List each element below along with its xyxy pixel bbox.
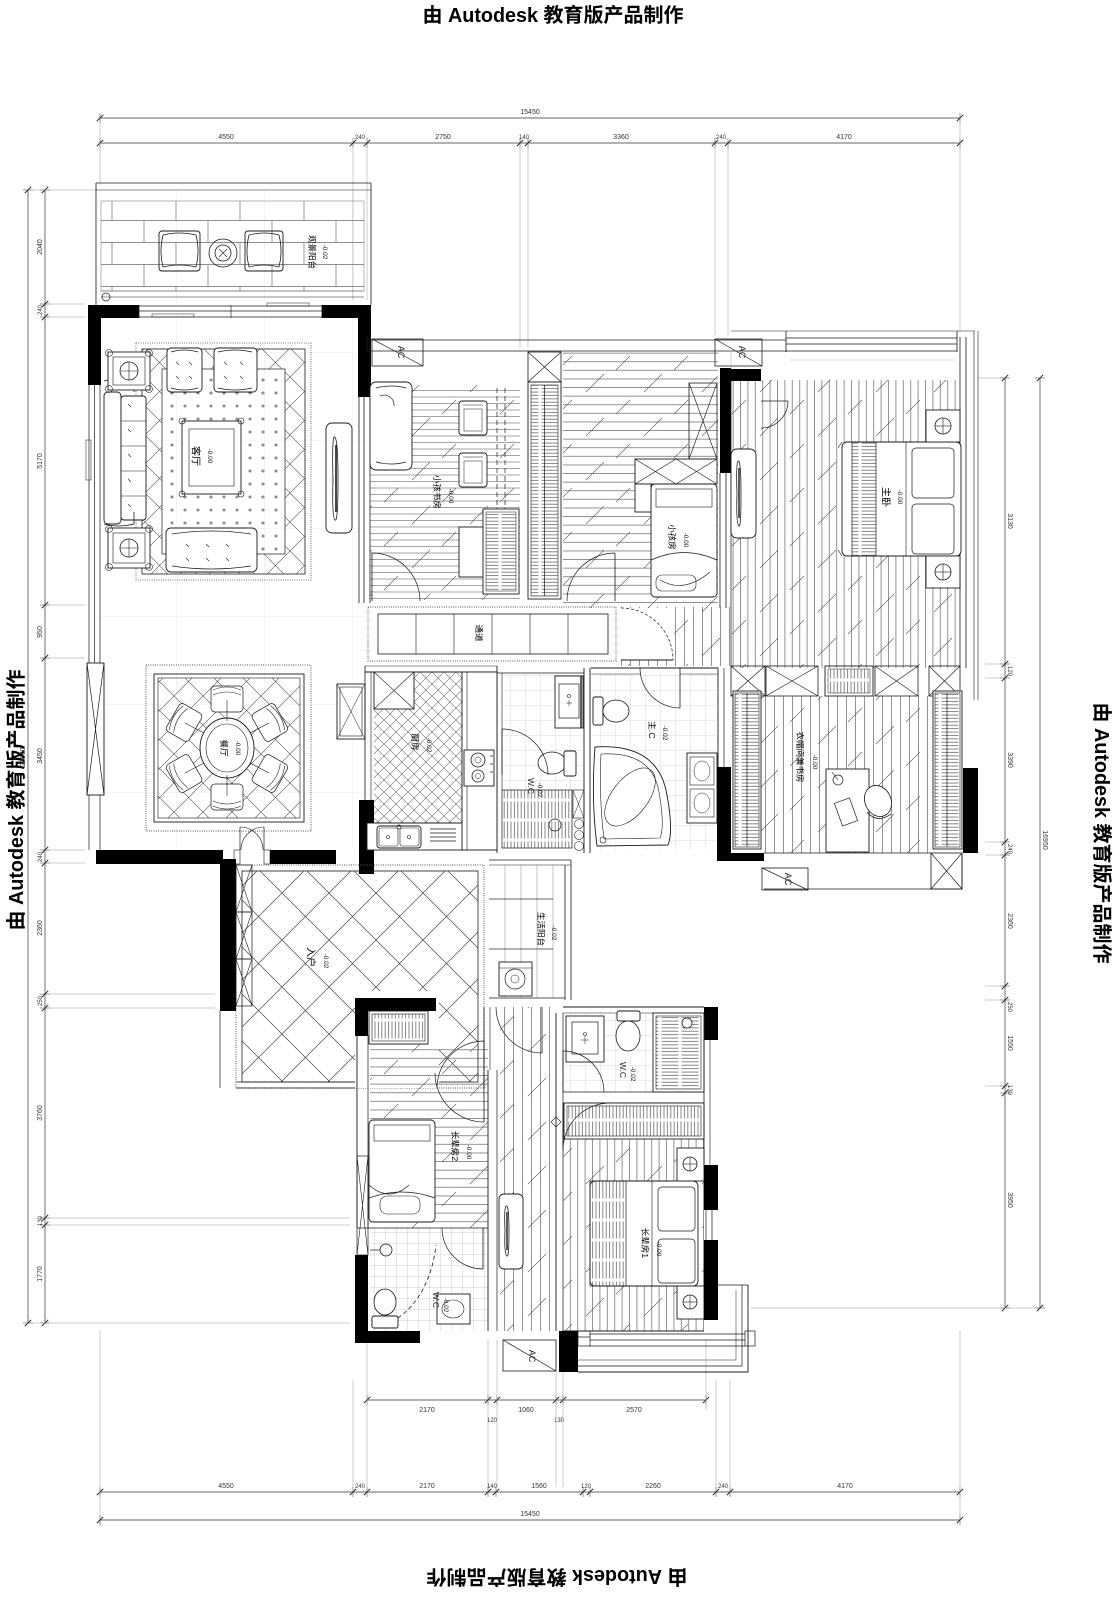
svg-text:3130: 3130 (1006, 513, 1013, 529)
svg-text:140: 140 (487, 1484, 498, 1490)
svg-text:15450: 15450 (520, 1511, 540, 1518)
svg-text:W.C: W.C (526, 778, 536, 794)
svg-text:4550: 4550 (218, 1483, 234, 1490)
svg-text:2: 2 (450, 1156, 460, 1161)
svg-text:-0.00: -0.00 (447, 489, 454, 504)
svg-text:120: 120 (581, 1484, 592, 1490)
svg-text:-0.00: -0.00 (655, 1242, 662, 1257)
svg-text:3360: 3360 (613, 134, 629, 141)
svg-text:Autodesk: Autodesk (443, 5, 544, 27)
svg-text:-0.02: -0.02 (425, 738, 432, 753)
svg-text:-0.02: -0.02 (661, 726, 668, 741)
svg-text:240: 240 (38, 304, 44, 315)
svg-text:2260: 2260 (645, 1483, 661, 1490)
svg-text:AC: AC (527, 1350, 537, 1363)
svg-text:-0.00: -0.00 (682, 533, 689, 548)
svg-text:15450: 15450 (520, 109, 540, 116)
svg-text:950: 950 (37, 626, 44, 638)
svg-text:20360: 20360 (20, 747, 27, 767)
svg-text:3390: 3390 (1006, 752, 1013, 768)
svg-text:120: 120 (1006, 666, 1012, 677)
svg-text:1770: 1770 (37, 1266, 44, 1282)
svg-text:-0.00: -0.00 (896, 490, 903, 505)
svg-text:1560: 1560 (531, 1483, 547, 1490)
svg-text:3760: 3760 (37, 1105, 44, 1121)
svg-text:240: 240 (355, 1484, 366, 1490)
svg-text:1: 1 (640, 1253, 650, 1258)
svg-text:-0.02: -0.02 (322, 954, 329, 969)
svg-text:-0.00: -0.00 (206, 449, 213, 464)
svg-text:3450: 3450 (37, 748, 44, 764)
svg-text:-0.02: -0.02 (550, 926, 557, 941)
svg-text:130: 130 (1006, 1085, 1012, 1096)
svg-text:2170: 2170 (419, 1483, 435, 1490)
svg-text:AC: AC (737, 346, 747, 359)
svg-text:5170: 5170 (37, 453, 44, 469)
svg-text:240: 240 (38, 851, 44, 862)
svg-text:3950: 3950 (1006, 1192, 1013, 1208)
svg-text:250: 250 (38, 995, 44, 1006)
svg-text:Autodesk: Autodesk (1090, 723, 1112, 824)
svg-text:-0.02: -0.02 (321, 245, 328, 260)
svg-text:1060: 1060 (518, 1407, 534, 1414)
svg-text:-0.00: -0.00 (234, 741, 241, 756)
svg-text:240: 240 (1006, 844, 1012, 855)
svg-text:4170: 4170 (837, 1483, 853, 1490)
svg-text:16950: 16950 (1041, 830, 1048, 850)
svg-text:120: 120 (487, 1418, 498, 1424)
svg-text:W.C: W.C (431, 1292, 441, 1308)
svg-text:2360: 2360 (37, 920, 44, 936)
svg-text:240: 240 (716, 135, 727, 141)
svg-text:-0.00: -0.00 (465, 1145, 472, 1160)
svg-text:4550: 4550 (218, 134, 234, 141)
svg-text:-0.02: -0.02 (442, 1298, 449, 1313)
svg-text:2750: 2750 (435, 134, 451, 141)
svg-text:1550: 1550 (1006, 1035, 1013, 1051)
svg-text:Autodesk: Autodesk (6, 810, 28, 911)
svg-text:-0.02: -0.02 (629, 1067, 636, 1082)
svg-text:AC: AC (783, 873, 793, 886)
svg-text:2570: 2570 (626, 1407, 642, 1414)
svg-text:250: 250 (1006, 1002, 1012, 1013)
svg-text:240: 240 (355, 135, 366, 141)
svg-text:.C: .C (647, 730, 657, 739)
svg-text:Autodesk: Autodesk (567, 1565, 668, 1587)
svg-text:2360: 2360 (1006, 913, 1013, 929)
svg-text:140: 140 (519, 135, 530, 141)
svg-text:AC: AC (396, 346, 406, 359)
svg-text:W.C: W.C (618, 1062, 628, 1078)
svg-text:-0.02: -0.02 (536, 783, 543, 798)
svg-text:2040: 2040 (37, 239, 44, 255)
svg-text:2170: 2170 (419, 1407, 435, 1414)
svg-text:240: 240 (718, 1484, 729, 1490)
svg-text:4170: 4170 (836, 134, 852, 141)
svg-text:130: 130 (38, 1215, 44, 1226)
svg-text:-0.00: -0.00 (811, 755, 818, 770)
